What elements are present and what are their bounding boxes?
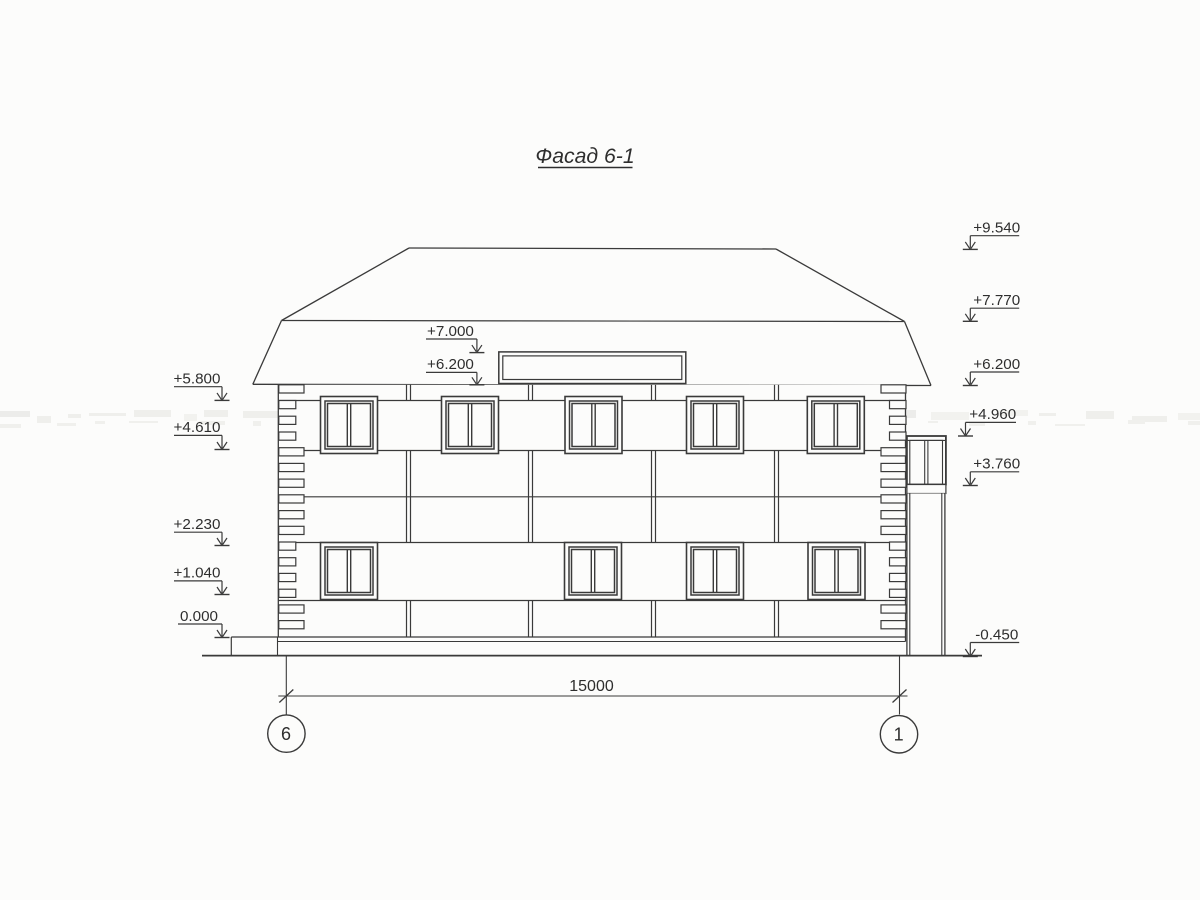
svg-text:+3.760: +3.760	[973, 456, 1020, 473]
svg-text:6: 6	[281, 724, 291, 744]
svg-text:+7.000: +7.000	[427, 323, 474, 340]
svg-text:+6.200: +6.200	[427, 356, 474, 373]
svg-text:-0.450: -0.450	[975, 626, 1018, 643]
svg-text:+2.230: +2.230	[174, 516, 221, 533]
svg-text:+7.770: +7.770	[973, 292, 1020, 309]
svg-text:+9.540: +9.540	[973, 220, 1020, 237]
svg-text:15000: 15000	[569, 678, 614, 695]
svg-text:+1.040: +1.040	[174, 565, 221, 582]
svg-text:+4.610: +4.610	[174, 419, 221, 436]
svg-text:0.000: 0.000	[180, 608, 218, 625]
svg-text:+5.800: +5.800	[174, 371, 221, 388]
svg-text:+6.200: +6.200	[973, 356, 1020, 373]
svg-text:Фасад 6-1: Фасад 6-1	[535, 145, 634, 168]
svg-text:+4.960: +4.960	[969, 406, 1016, 423]
svg-text:1: 1	[894, 725, 904, 745]
